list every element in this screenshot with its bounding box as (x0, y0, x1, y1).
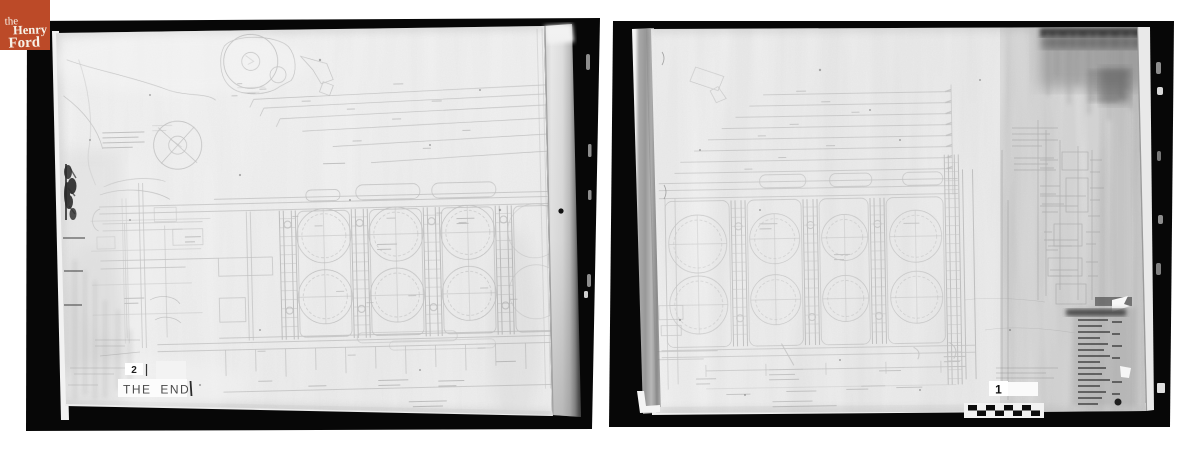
svg-text:THE END: THE END (123, 383, 190, 397)
svg-text:2: 2 (131, 365, 137, 376)
svg-text:Ford: Ford (8, 34, 41, 51)
svg-text:1: 1 (995, 383, 1002, 397)
